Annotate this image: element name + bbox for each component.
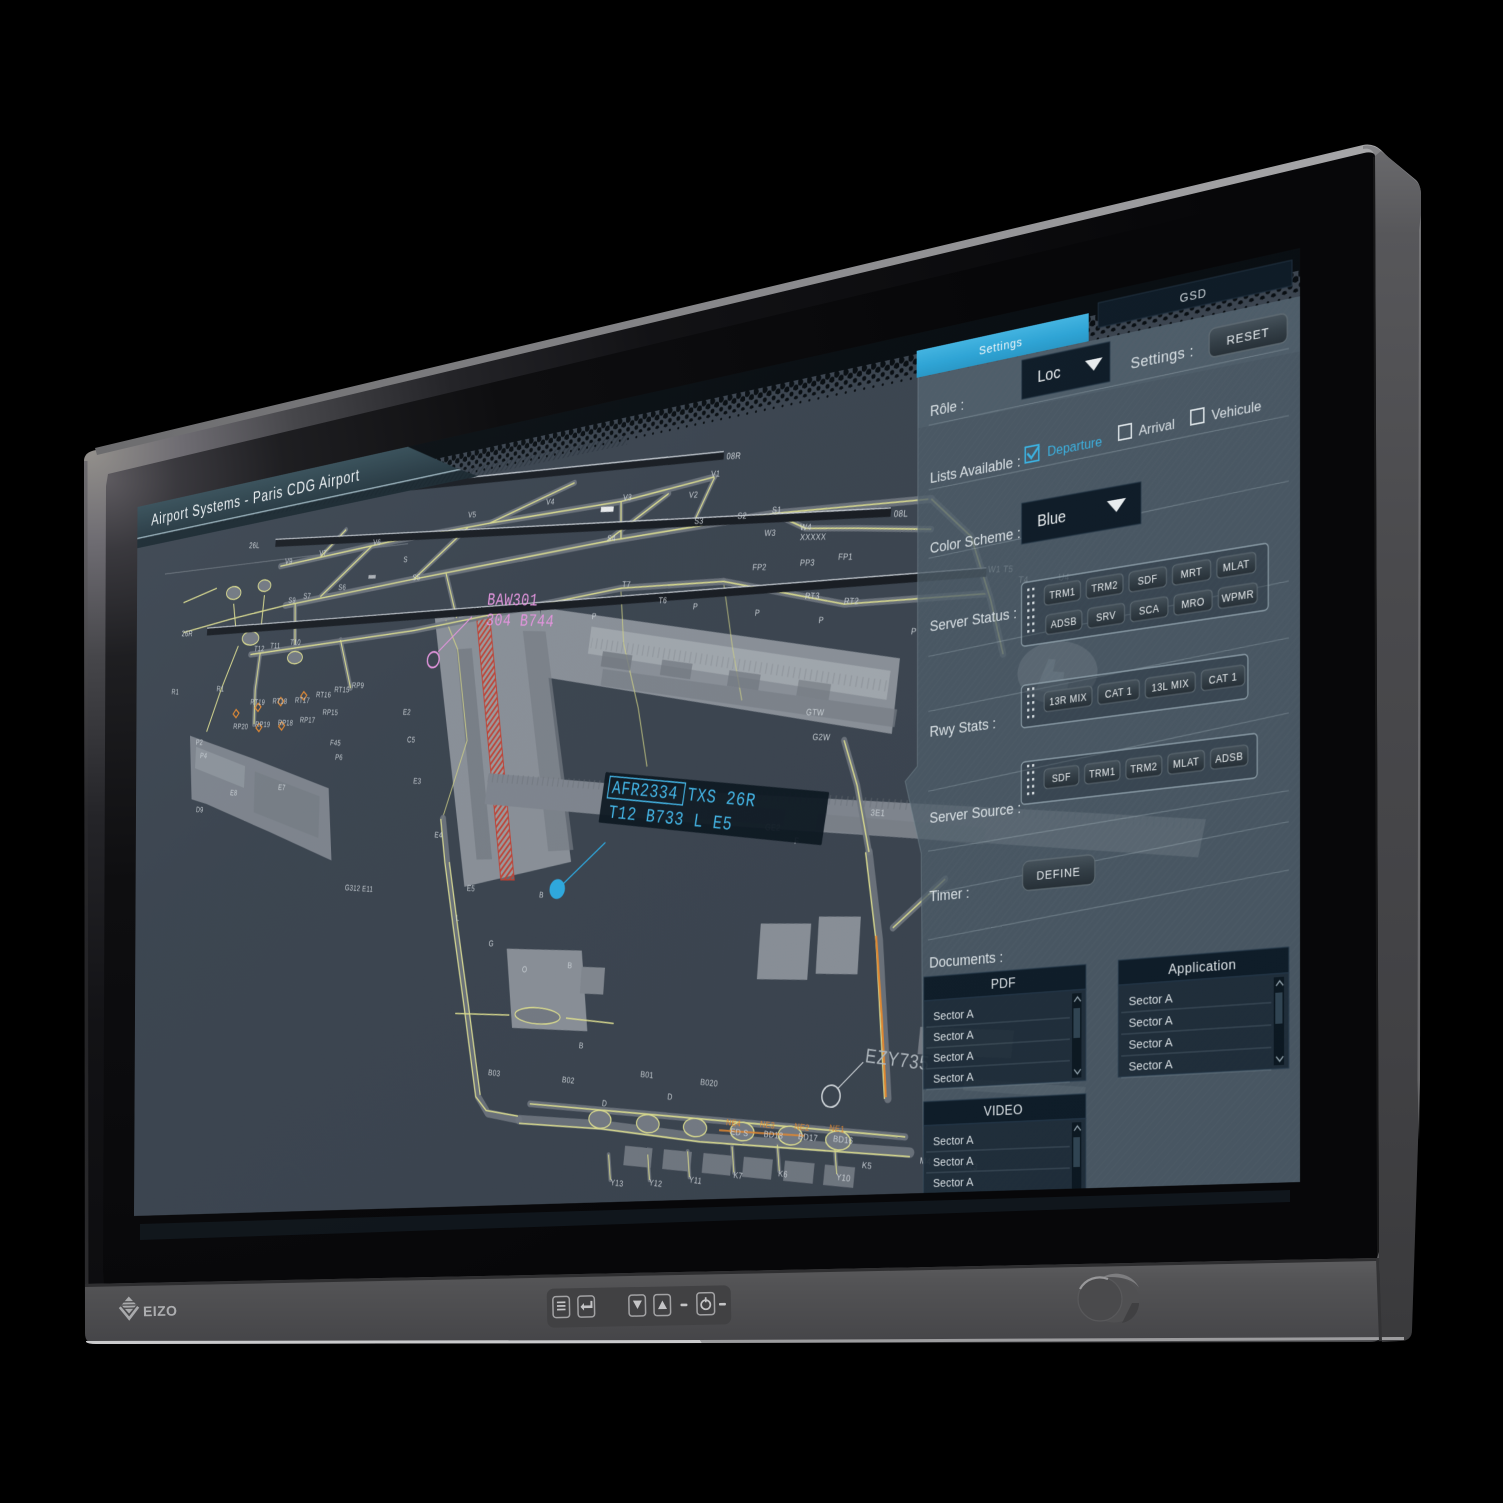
- svg-text:EIZO: EIZO: [143, 1302, 178, 1319]
